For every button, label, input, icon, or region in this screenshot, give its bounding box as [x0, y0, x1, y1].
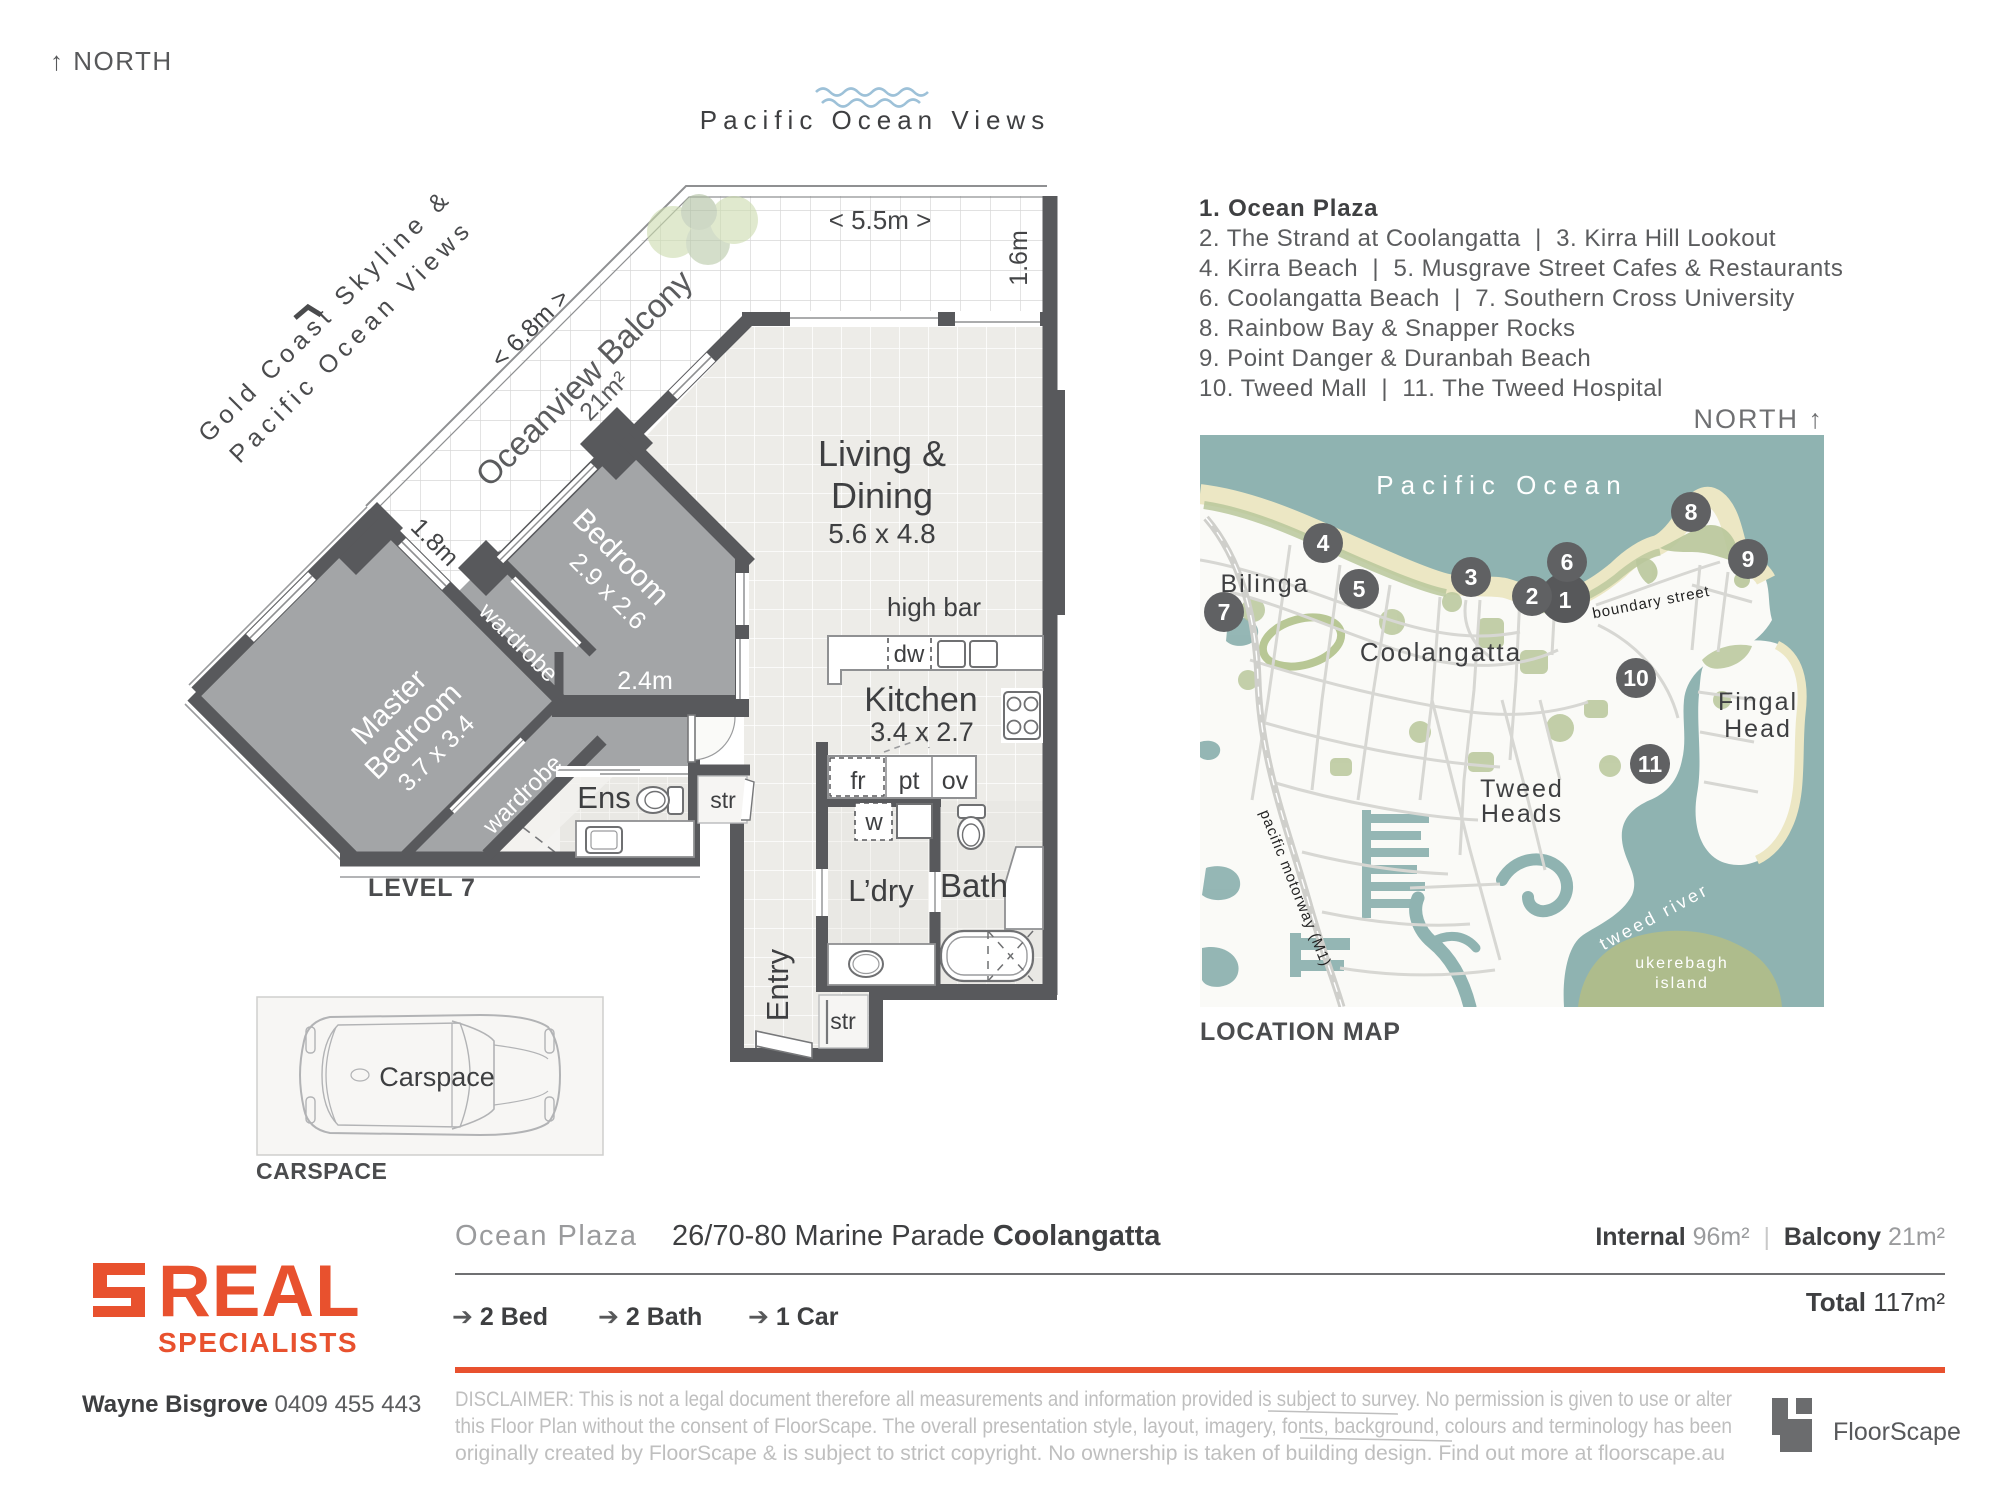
svg-text:2.4m: 2.4m: [617, 667, 673, 695]
svg-text:Living &: Living &: [818, 433, 946, 474]
svg-text:Dining: Dining: [831, 475, 933, 516]
svg-text:Head: Head: [1724, 715, 1792, 743]
svg-text:➔ 2 Bed: ➔ 2 Bed: [452, 1303, 548, 1331]
svg-text:high bar: high bar: [887, 592, 981, 622]
svg-text:Pacific Ocean: Pacific Ocean: [1376, 470, 1627, 500]
svg-text:9. Point Danger & Duranbah Bea: 9. Point Danger & Duranbah Beach: [1199, 345, 1591, 372]
svg-text:3: 3: [1465, 564, 1478, 590]
svg-text:LEVEL 7: LEVEL 7: [368, 874, 476, 902]
svg-text:SPECIALISTS: SPECIALISTS: [158, 1327, 358, 1358]
svg-text:Total 117m²: Total 117m²: [1806, 1287, 1946, 1317]
svg-text:DISCLAIMER: This is not a lega: DISCLAIMER: This is not a legal document…: [455, 1388, 1732, 1411]
svg-text:< 5.5m >: < 5.5m >: [829, 205, 932, 235]
svg-text:11: 11: [1638, 751, 1663, 777]
svg-text:dw: dw: [894, 641, 925, 668]
svg-text:w: w: [864, 809, 883, 836]
svg-text:10. Tweed Mall | 11. The Twe: 10. Tweed Mall | 11. The Tweed Hospital: [1199, 375, 1663, 402]
svg-text:1: 1: [1559, 587, 1572, 613]
svg-text:6: 6: [1561, 549, 1574, 575]
svg-text:➔ 2 Bath: ➔ 2 Bath: [598, 1303, 702, 1331]
svg-text:Ens: Ens: [577, 780, 630, 815]
svg-text:➔ 1 Car: ➔ 1 Car: [748, 1303, 839, 1331]
svg-text:7: 7: [1218, 599, 1231, 625]
svg-text:10: 10: [1623, 665, 1649, 691]
svg-text:Pacific Ocean Views: Pacific Ocean Views: [700, 105, 1051, 135]
svg-text:FloorScape: FloorScape: [1833, 1418, 1961, 1446]
svg-text:Carspace: Carspace: [379, 1062, 495, 1092]
svg-text:Coolangatta: Coolangatta: [1360, 637, 1522, 667]
svg-text:26/70-80 Marine Parade Coolang: 26/70-80 Marine Parade Coolangatta: [672, 1220, 1161, 1252]
svg-text:4: 4: [1317, 530, 1330, 556]
svg-text:ov: ov: [942, 767, 969, 795]
svg-text:Ocean Plaza: Ocean Plaza: [455, 1220, 638, 1252]
svg-text:6. Coolangatta Beach | 7. So: 6. Coolangatta Beach | 7. Southern Cross…: [1199, 285, 1795, 312]
svg-text:CARSPACE: CARSPACE: [256, 1158, 387, 1184]
svg-text:REAL: REAL: [158, 1251, 361, 1332]
svg-text:8: 8: [1685, 499, 1698, 525]
svg-text:4. Kirra Beach | 5. Musgrave: 4. Kirra Beach | 5. Musgrave Street Cafe…: [1199, 255, 1843, 282]
svg-text:str: str: [830, 1008, 856, 1034]
svg-text:pt: pt: [899, 767, 920, 795]
svg-text:1.6m: 1.6m: [1005, 230, 1033, 286]
svg-text:Bilinga: Bilinga: [1220, 570, 1309, 598]
svg-text:5: 5: [1353, 576, 1366, 602]
svg-text:3.4 x 2.7: 3.4 x 2.7: [870, 717, 974, 747]
svg-text:Bath: Bath: [940, 867, 1008, 904]
svg-text:1. Ocean Plaza: 1. Ocean Plaza: [1199, 195, 1378, 222]
svg-text:Kitchen: Kitchen: [864, 681, 977, 719]
svg-text:Fingal: Fingal: [1718, 688, 1798, 716]
svg-text:this Floor Plan without the co: this Floor Plan without the consent of F…: [455, 1415, 1732, 1438]
svg-text:Heads: Heads: [1481, 800, 1563, 828]
svg-text:fr: fr: [850, 767, 865, 795]
svg-text:NORTH ↑: NORTH ↑: [1693, 404, 1824, 434]
svg-text:5.6 x 4.8: 5.6 x 4.8: [828, 518, 935, 549]
svg-text:9: 9: [1742, 546, 1755, 572]
svg-text:island: island: [1655, 975, 1709, 992]
svg-text:str: str: [710, 787, 736, 813]
svg-text:LOCATION MAP: LOCATION MAP: [1200, 1018, 1401, 1046]
svg-text:↑ NORTH: ↑ NORTH: [50, 46, 173, 76]
svg-text:L’dry: L’dry: [848, 873, 914, 908]
svg-text:Tweed: Tweed: [1480, 775, 1564, 803]
svg-text:ukerebagh: ukerebagh: [1635, 955, 1729, 972]
svg-text:Internal 96m² | Balcony 21m²: Internal 96m² | Balcony 21m²: [1595, 1223, 1945, 1251]
svg-text:8. Rainbow Bay & Snapper Rocks: 8. Rainbow Bay & Snapper Rocks: [1199, 315, 1576, 342]
svg-text:Entry: Entry: [760, 948, 795, 1021]
svg-text:2: 2: [1526, 583, 1539, 609]
svg-text:2. The Strand at Coolangatta: 2. The Strand at Coolangatta | 3. Kirra …: [1199, 225, 1776, 252]
svg-text:Wayne Bisgrove 0409 455 443: Wayne Bisgrove 0409 455 443: [82, 1391, 421, 1418]
svg-text:originally created by FloorSca: originally created by FloorScape & is su…: [455, 1442, 1725, 1465]
